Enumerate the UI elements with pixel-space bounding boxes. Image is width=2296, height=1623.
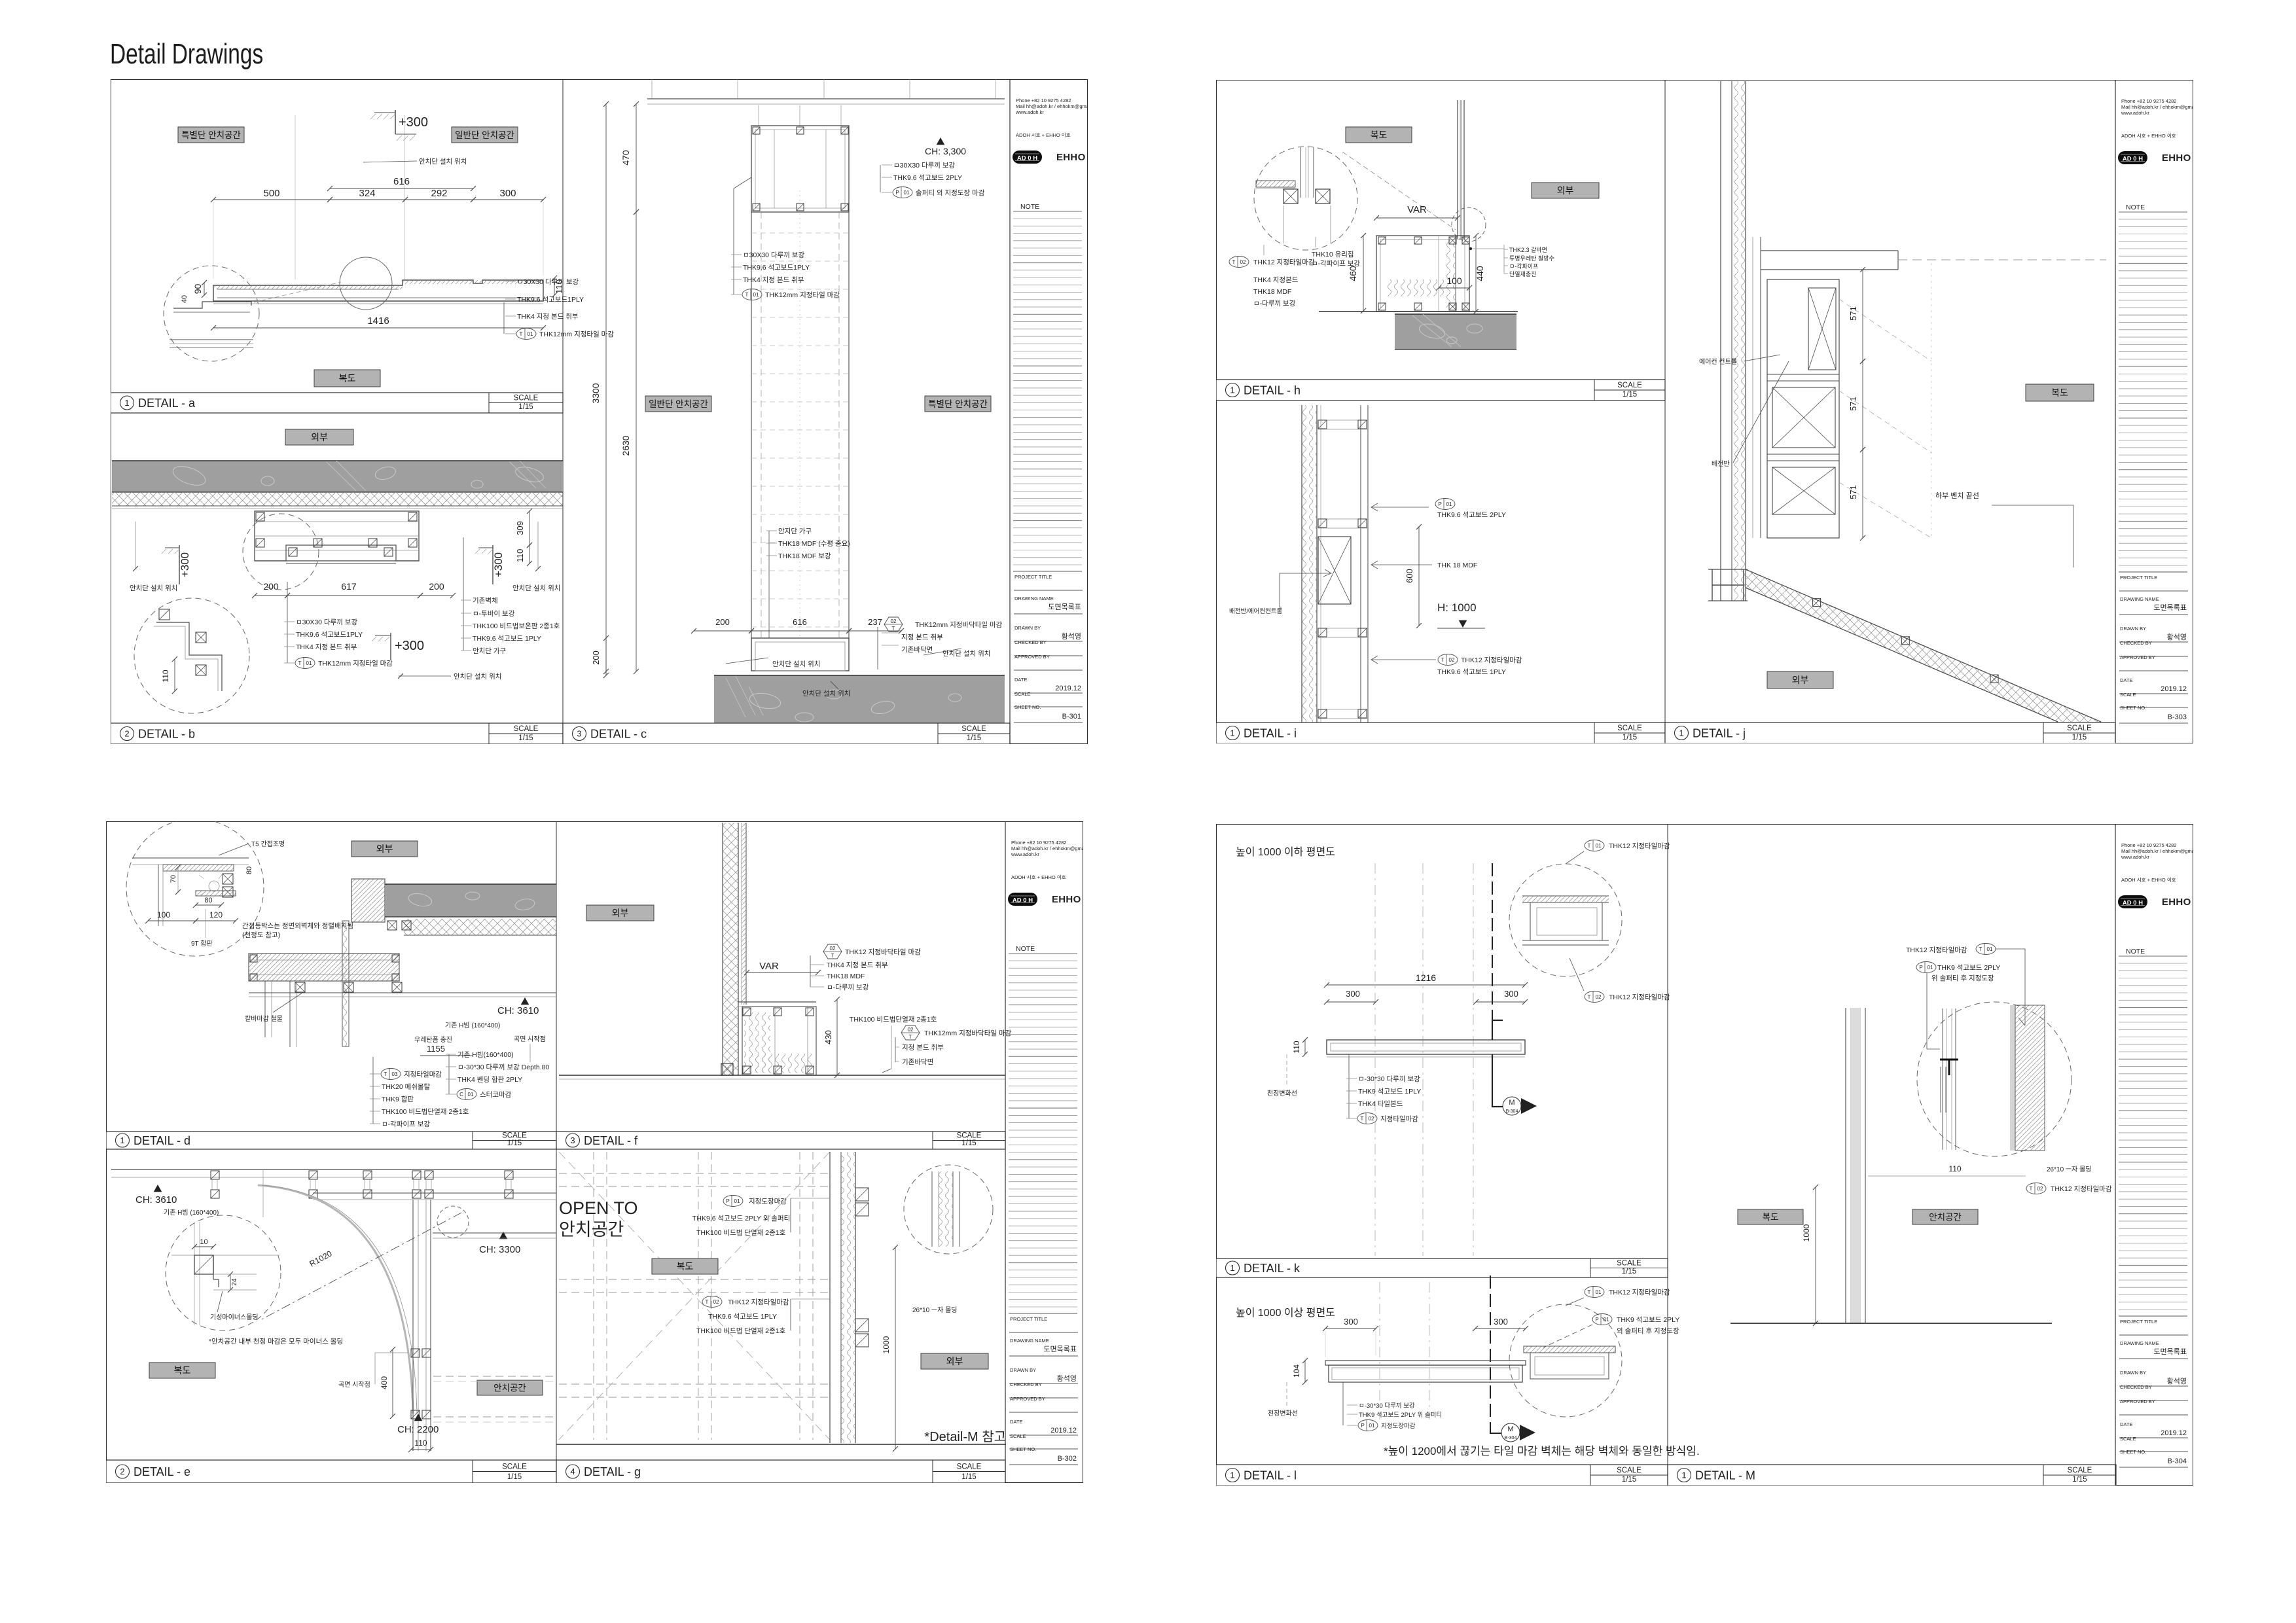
svg-text:THK9.6 석고보드 2PLY: THK9.6 석고보드 2PLY <box>1437 511 1506 519</box>
svg-text:+300: +300 <box>492 552 505 577</box>
svg-text:80: 80 <box>204 897 212 904</box>
svg-text:THK4 지정 본드 취부: THK4 지정 본드 취부 <box>296 643 357 651</box>
svg-text:B-304: B-304 <box>1505 1436 1517 1440</box>
svg-text:SCALE: SCALE <box>1617 382 1642 389</box>
svg-text:안치단 설치 위치: 안치단 설치 위치 <box>130 584 177 592</box>
svg-text:SCALE: SCALE <box>2120 692 2136 698</box>
svg-text:B-303: B-303 <box>2168 713 2187 721</box>
svg-text:Mail hh@adoh.kr / ehhokm@gmail: Mail hh@adoh.kr / ehhokm@gmail.com <box>1011 846 1083 851</box>
svg-text:SHEET NO.: SHEET NO. <box>2120 1449 2146 1455</box>
svg-text:ㅁ-30*30 다루끼 보강 Depth.80: ㅁ-30*30 다루끼 보강 Depth.80 <box>457 1063 549 1071</box>
svg-text:외부: 외부 <box>376 844 393 854</box>
svg-text:복도: 복도 <box>174 1365 191 1376</box>
svg-text:1/15: 1/15 <box>2072 734 2087 741</box>
svg-text:T: T <box>1441 657 1444 663</box>
svg-text:EHHO: EHHO <box>1056 152 1086 163</box>
svg-text:THK9 석고보드 2PLY: THK9 석고보드 2PLY <box>1617 1316 1679 1324</box>
svg-text:APPROVED BY: APPROVED BY <box>1014 654 1050 660</box>
svg-text:THK9.6 석고보드 1PLY: THK9.6 석고보드 1PLY <box>708 1313 777 1321</box>
svg-text:1/15: 1/15 <box>967 734 981 742</box>
svg-text:1: 1 <box>1230 385 1234 395</box>
svg-text:02: 02 <box>1240 259 1246 265</box>
svg-text:THK12mm 지정타일 마감: THK12mm 지정타일 마감 <box>318 659 393 668</box>
svg-text:10: 10 <box>200 1238 207 1246</box>
svg-text:DETAIL - g: DETAIL - g <box>584 1465 641 1478</box>
svg-text:www.adoh.kr: www.adoh.kr <box>1011 851 1039 857</box>
svg-text:460: 460 <box>1348 266 1358 281</box>
svg-text:DETAIL - M: DETAIL - M <box>1695 1469 1755 1482</box>
svg-text:ㅁ-30*30 다루끼 보강: ㅁ-30*30 다루끼 보강 <box>1358 1075 1420 1083</box>
svg-text:배전반: 배전반 <box>1712 460 1730 468</box>
svg-text:THK12mm 지정바닥타일 마감: THK12mm 지정바닥타일 마감 <box>924 1029 1012 1037</box>
svg-text:DETAIL - l: DETAIL - l <box>1244 1469 1297 1482</box>
svg-text:하부 벤치 끝선: 하부 벤치 끝선 <box>1935 491 1979 500</box>
svg-text:THK9.6 석고보드 2PLY: THK9.6 석고보드 2PLY <box>893 174 962 182</box>
svg-text:THK20 메쉬몰탈: THK20 메쉬몰탈 <box>382 1082 431 1091</box>
svg-text:01: 01 <box>1604 1317 1609 1323</box>
svg-text:CHECKED BY: CHECKED BY <box>2120 1384 2152 1390</box>
svg-text:THK9 석고보드 1PLY: THK9 석고보드 1PLY <box>1358 1088 1421 1096</box>
svg-text:AD 0 H: AD 0 H <box>2123 156 2143 163</box>
svg-text:AD 0 H: AD 0 H <box>1013 897 1033 904</box>
svg-text:ㅁ-다루끼 보강: ㅁ-다루끼 보강 <box>827 984 869 991</box>
svg-text:APPROVED BY: APPROVED BY <box>1010 1396 1045 1402</box>
svg-text:DATE: DATE <box>2120 677 2132 683</box>
svg-text:EHHO: EHHO <box>2162 897 2191 908</box>
svg-text:02: 02 <box>908 1027 914 1033</box>
svg-text:NOTE: NOTE <box>1016 945 1035 953</box>
svg-text:Mail hh@adoh.kr / ehhokm@gmail: Mail hh@adoh.kr / ehhokm@gmail.com <box>2121 848 2193 854</box>
svg-text:THK2.3 갈바면: THK2.3 갈바면 <box>1509 247 1547 253</box>
svg-text:600: 600 <box>1405 569 1414 583</box>
svg-text:지정타일마감: 지정타일마감 <box>1380 1115 1418 1123</box>
svg-text:+300: +300 <box>395 639 424 653</box>
svg-text:SCALE: SCALE <box>2067 724 2092 732</box>
svg-text:THK12 지정타일마감: THK12 지정타일마감 <box>1609 993 1670 1001</box>
svg-text:THK12mm 지정바닥타일 마감: THK12mm 지정바닥타일 마감 <box>915 620 1003 629</box>
svg-text:CH: 3610: CH: 3610 <box>135 1194 177 1205</box>
svg-text:SCALE: SCALE <box>514 395 539 402</box>
svg-text:도면목록표: 도면목록표 <box>2153 1347 2187 1356</box>
svg-text:1: 1 <box>1681 1471 1686 1480</box>
svg-text:DRAWN BY: DRAWN BY <box>2120 1370 2146 1376</box>
svg-text:110: 110 <box>161 669 170 682</box>
svg-text:DRAWN BY: DRAWN BY <box>2120 626 2146 632</box>
svg-text:01: 01 <box>528 331 533 337</box>
svg-text:616: 616 <box>393 176 410 187</box>
svg-text:237: 237 <box>868 617 882 627</box>
svg-text:02: 02 <box>713 1299 719 1305</box>
svg-text:2019.12: 2019.12 <box>2161 685 2187 693</box>
svg-text:01: 01 <box>1596 843 1602 849</box>
svg-text:특별단 안치공간: 특별단 안치공간 <box>928 399 988 409</box>
svg-text:02: 02 <box>1596 994 1602 1000</box>
svg-text:T: T <box>745 292 749 298</box>
svg-text:DETAIL - e: DETAIL - e <box>134 1465 190 1478</box>
svg-text:THK9 합판: THK9 합판 <box>382 1096 414 1103</box>
svg-text:40: 40 <box>181 295 188 303</box>
svg-text:Phone +82 10 9275 4282: Phone +82 10 9275 4282 <box>1016 98 1071 103</box>
svg-text:26*10 ㅡ자 몰딩: 26*10 ㅡ자 몰딩 <box>2047 1166 2092 1173</box>
svg-text:외부: 외부 <box>946 1356 963 1366</box>
svg-text:지정타일마감: 지정타일마감 <box>404 1070 442 1079</box>
svg-text:안치단 설치 위치: 안치단 설치 위치 <box>512 584 560 592</box>
svg-text:01: 01 <box>1369 1423 1375 1429</box>
svg-text:THK12 지정타일마감: THK12 지정타일마감 <box>1906 946 1967 954</box>
svg-text:THK12mm 지정타일 마감: THK12mm 지정타일 마감 <box>765 291 840 299</box>
svg-text:단열재충진: 단열재충진 <box>1509 271 1536 277</box>
svg-text:PROJECT TITLE: PROJECT TITLE <box>1010 1316 1047 1322</box>
svg-text:+300: +300 <box>179 552 191 577</box>
svg-text:01: 01 <box>1596 1289 1602 1295</box>
svg-text:안치단 설치 위치: 안치단 설치 위치 <box>802 689 850 698</box>
svg-text:110: 110 <box>414 1438 427 1448</box>
svg-text:CHECKED BY: CHECKED BY <box>1010 1382 1042 1387</box>
svg-text:PROJECT TITLE: PROJECT TITLE <box>1014 574 1052 580</box>
svg-text:DRAWING NAME: DRAWING NAME <box>2120 596 2159 602</box>
svg-text:THK9 석고보드 2PLY: THK9 석고보드 2PLY <box>1937 964 2000 972</box>
svg-text:지정도장마감: 지정도장마감 <box>1381 1422 1416 1430</box>
svg-text:1/15: 1/15 <box>518 734 533 742</box>
svg-text:기존 H빔(160*400): 기존 H빔(160*400) <box>457 1051 514 1059</box>
svg-text:THK18 MDF (수평 중요): THK18 MDF (수평 중요) <box>778 540 850 548</box>
svg-text:THK100 비드법 단열재 2종1호: THK100 비드법 단열재 2종1호 <box>696 1229 786 1237</box>
svg-text:B-304: B-304 <box>2168 1457 2187 1465</box>
svg-text:PROJECT TITLE: PROJECT TITLE <box>2120 1319 2157 1325</box>
svg-text:THK9.6 석고보드 1PLY: THK9.6 석고보드 1PLY <box>1437 668 1506 676</box>
svg-text:THK12mm 지정타일 마감: THK12mm 지정타일 마감 <box>539 330 614 338</box>
svg-text:일반단 안치공간: 일반단 안치공간 <box>455 130 514 140</box>
svg-text:SCALE: SCALE <box>2120 1436 2136 1442</box>
svg-text:P: P <box>1438 501 1441 507</box>
svg-text:*Detail-M 참고: *Detail-M 참고 <box>924 1429 1006 1444</box>
svg-text:외 솔퍼티 후 지정도장: 외 솔퍼티 후 지정도장 <box>1617 1327 1679 1335</box>
svg-text:THK100 비드법보온판 2종1호: THK100 비드법보온판 2종1호 <box>473 622 560 630</box>
svg-text:THK4 지정 본드 취부: THK4 지정 본드 취부 <box>827 961 888 969</box>
svg-text:309: 309 <box>515 521 525 535</box>
svg-text:300: 300 <box>1504 989 1518 999</box>
svg-text:1/15: 1/15 <box>507 1139 522 1147</box>
svg-text:+300: +300 <box>399 115 428 130</box>
svg-text:T: T <box>706 1299 709 1305</box>
svg-text:CHECKED BY: CHECKED BY <box>2120 640 2152 646</box>
svg-text:높이 1000 이상 평면도: 높이 1000 이상 평면도 <box>1236 1307 1335 1319</box>
svg-text:SHEET NO.: SHEET NO. <box>2120 705 2146 711</box>
svg-text:DETAIL - h: DETAIL - h <box>1244 384 1300 397</box>
svg-text:C: C <box>459 1092 463 1097</box>
svg-text:616: 616 <box>793 617 807 627</box>
svg-text:OPEN TO: OPEN TO <box>559 1198 638 1218</box>
svg-text:SCALE: SCALE <box>1617 724 1642 732</box>
svg-text:DETAIL - d: DETAIL - d <box>134 1134 190 1147</box>
svg-text:DETAIL - k: DETAIL - k <box>1244 1262 1300 1275</box>
svg-text:24: 24 <box>231 1278 238 1286</box>
svg-text:1000: 1000 <box>1802 1224 1811 1241</box>
svg-text:1/15: 1/15 <box>2072 1476 2087 1484</box>
svg-text:T5 간접조명: T5 간접조명 <box>251 840 285 848</box>
svg-text:300: 300 <box>1494 1317 1508 1327</box>
svg-text:THK12 지정타일마감: THK12 지정타일마감 <box>1609 842 1670 850</box>
svg-text:*높이 1200에서 끊기는 타일 마감 벽체는 해당 벽체: *높이 1200에서 끊기는 타일 마감 벽체는 해당 벽체와 동일한 방식임. <box>1384 1445 1700 1457</box>
svg-text:3: 3 <box>577 729 581 739</box>
svg-text:Mail hh@adoh.kr / ehhokm@gmail: Mail hh@adoh.kr / ehhokm@gmail.com <box>2121 104 2193 110</box>
svg-text:특별단 안치공간: 특별단 안치공간 <box>181 130 241 140</box>
svg-text:T: T <box>1232 259 1236 265</box>
svg-text:02: 02 <box>1369 1116 1374 1122</box>
svg-text:100: 100 <box>157 910 170 919</box>
svg-text:THK4 지정 본드 취부: THK4 지정 본드 취부 <box>743 276 804 284</box>
svg-text:02: 02 <box>830 946 836 952</box>
svg-text:APPROVED BY: APPROVED BY <box>2120 1399 2155 1404</box>
svg-text:안치단 설치 위치: 안치단 설치 위치 <box>772 660 820 668</box>
svg-text:SCALE: SCALE <box>957 1463 982 1471</box>
svg-text:T: T <box>298 660 302 666</box>
svg-text:도면목록표: 도면목록표 <box>1043 1345 1077 1353</box>
svg-text:01: 01 <box>1446 501 1452 507</box>
svg-text:110: 110 <box>1948 1164 1961 1173</box>
svg-text:T: T <box>909 1034 912 1040</box>
svg-text:324: 324 <box>359 188 375 199</box>
svg-text:SCALE: SCALE <box>1014 691 1031 697</box>
svg-text:1: 1 <box>1679 728 1683 738</box>
svg-text:571: 571 <box>1848 485 1858 499</box>
svg-text:01: 01 <box>1987 946 1993 952</box>
svg-text:투명우레탄 칠방수: 투명우레탄 칠방수 <box>1509 255 1554 262</box>
svg-text:200: 200 <box>591 651 601 665</box>
svg-text:VAR: VAR <box>759 961 779 972</box>
svg-text:DETAIL - a: DETAIL - a <box>138 397 196 410</box>
svg-text:P: P <box>1361 1423 1364 1429</box>
svg-text:1/15: 1/15 <box>1622 1268 1636 1275</box>
svg-text:200: 200 <box>263 581 279 592</box>
svg-text:P: P <box>895 190 899 196</box>
svg-text:황석영: 황석영 <box>1062 632 1081 641</box>
svg-text:SCALE: SCALE <box>961 725 986 733</box>
svg-text:안치단 설치 위치: 안치단 설치 위치 <box>419 157 467 166</box>
svg-text:ADOH 시호 + EHHO 이호: ADOH 시호 + EHHO 이호 <box>2121 876 2176 883</box>
svg-text:안치공간: 안치공간 <box>1929 1212 1962 1222</box>
svg-text:ㅁ-각파이프: ㅁ-각파이프 <box>1509 262 1538 270</box>
svg-text:스터코마감: 스터코마감 <box>480 1091 512 1099</box>
svg-text:ㅁ30X30 다루끼 보강: ㅁ30X30 다루끼 보강 <box>517 278 579 286</box>
svg-text:300: 300 <box>1346 989 1360 999</box>
svg-text:1/15: 1/15 <box>1623 391 1637 399</box>
svg-text:T: T <box>520 331 523 337</box>
svg-text:THK100 비드법 단열재 2종1호: THK100 비드법 단열재 2종1호 <box>696 1327 786 1335</box>
svg-text:DETAIL - i: DETAIL - i <box>1244 727 1297 740</box>
svg-text:B-304: B-304 <box>1506 1109 1518 1114</box>
svg-text:THK12 지정타일마감: THK12 지정타일마감 <box>2051 1185 2112 1193</box>
svg-text:위 솔퍼티 후 지정도장: 위 솔퍼티 후 지정도장 <box>1931 974 1994 982</box>
svg-text:THK18 MDF 보강: THK18 MDF 보강 <box>778 552 831 560</box>
svg-text:AD 0 H: AD 0 H <box>2123 900 2143 907</box>
svg-text:1: 1 <box>1230 728 1234 738</box>
svg-text:300: 300 <box>1344 1317 1358 1327</box>
svg-text:THK10 유리집: THK10 유리집 <box>1312 251 1354 259</box>
svg-text:571: 571 <box>1848 306 1858 321</box>
svg-text:DRAWN BY: DRAWN BY <box>1010 1367 1036 1373</box>
svg-text:황석영: 황석영 <box>1057 1374 1077 1383</box>
svg-text:01: 01 <box>468 1092 474 1097</box>
svg-text:DRAWN BY: DRAWN BY <box>1014 625 1041 631</box>
svg-text:NOTE: NOTE <box>1020 203 1039 211</box>
svg-text:천장변화선: 천장변화선 <box>1267 1090 1297 1097</box>
svg-text:THK12 지정타일마감: THK12 지정타일마감 <box>1253 258 1315 266</box>
svg-text:DRAWING NAME: DRAWING NAME <box>2120 1340 2159 1346</box>
svg-text:03: 03 <box>392 1071 398 1077</box>
svg-text:T: T <box>831 953 834 959</box>
svg-text:430: 430 <box>823 1030 833 1044</box>
svg-text:THK100 비드법단열재 2종1호: THK100 비드법단열재 2종1호 <box>850 1016 937 1024</box>
svg-text:DRAWING NAME: DRAWING NAME <box>1010 1338 1049 1344</box>
svg-text:ADOH 시호 + EHHO 이호: ADOH 시호 + EHHO 이호 <box>2121 132 2176 139</box>
svg-text:SCALE: SCALE <box>2068 1467 2092 1474</box>
svg-text:복도: 복도 <box>1763 1212 1779 1222</box>
svg-text:EHHO: EHHO <box>2162 152 2191 164</box>
svg-text:APPROVED BY: APPROVED BY <box>2120 654 2155 660</box>
svg-text:NOTE: NOTE <box>2126 948 2145 955</box>
svg-text:THK4 지정본드: THK4 지정본드 <box>1253 276 1299 284</box>
svg-text:복도: 복도 <box>677 1261 694 1272</box>
svg-text:2: 2 <box>120 1467 124 1476</box>
svg-text:복도: 복도 <box>2051 387 2068 398</box>
svg-text:AD 0 H: AD 0 H <box>1017 155 1037 162</box>
svg-text:THK9.6 석고보드 1PLY: THK9.6 석고보드 1PLY <box>473 635 541 643</box>
svg-text:SCALE: SCALE <box>514 725 539 733</box>
svg-text:100: 100 <box>1446 276 1462 286</box>
svg-text:안지단 가구: 안지단 가구 <box>778 527 812 535</box>
svg-text:1416: 1416 <box>367 315 389 327</box>
svg-text:SCALE: SCALE <box>1617 1260 1641 1268</box>
svg-text:기존바닥면: 기존바닥면 <box>902 1058 933 1066</box>
svg-text:01: 01 <box>306 660 312 666</box>
svg-text:P: P <box>1595 1317 1598 1323</box>
svg-text:2019.12: 2019.12 <box>2161 1429 2187 1437</box>
svg-text:Phone +82 10 9275 4282: Phone +82 10 9275 4282 <box>1011 840 1066 846</box>
svg-text:THK12 지정타일마감: THK12 지정타일마감 <box>728 1298 789 1306</box>
svg-text:www.adoh.kr: www.adoh.kr <box>2121 854 2149 860</box>
svg-text:300: 300 <box>499 188 516 199</box>
svg-text:THK4 타일본드: THK4 타일본드 <box>1358 1099 1403 1108</box>
svg-text:ㅁ-다루끼 보강: ㅁ-다루끼 보강 <box>1253 300 1296 308</box>
svg-text:3: 3 <box>570 1135 575 1145</box>
svg-text:DATE: DATE <box>1010 1419 1022 1425</box>
svg-text:T: T <box>1588 843 1591 849</box>
svg-text:기존 H빔 (160*400): 기존 H빔 (160*400) <box>164 1209 219 1217</box>
svg-text:CH: 3,300: CH: 3,300 <box>925 146 966 156</box>
svg-text:DETAIL - j: DETAIL - j <box>1693 727 1746 740</box>
svg-text:2630: 2630 <box>620 435 631 455</box>
svg-text:70: 70 <box>170 875 177 883</box>
svg-text:M: M <box>1509 1099 1515 1107</box>
svg-text:200: 200 <box>429 581 444 592</box>
svg-text:안치단 가구: 안치단 가구 <box>473 647 507 655</box>
svg-text:곡면 시작점: 곡면 시작점 <box>514 1035 546 1043</box>
svg-text:Mail hh@adoh.kr / ehhokm@gmail: Mail hh@adoh.kr / ehhokm@gmail.com <box>1016 103 1088 109</box>
svg-text:THK9.6 석고보드1PLY: THK9.6 석고보드1PLY <box>296 631 363 639</box>
svg-text:M: M <box>1507 1425 1513 1433</box>
svg-text:CH: 3610: CH: 3610 <box>497 1005 539 1016</box>
svg-text:솔퍼티 외 지정도장 마감: 솔퍼티 외 지정도장 마감 <box>916 189 985 197</box>
svg-text:THK100 비드법단열재 2종1호: THK100 비드법단열재 2종1호 <box>382 1108 469 1116</box>
svg-text:기성마이너스몰딩: 기성마이너스몰딩 <box>210 1313 259 1321</box>
svg-text:ADOH 시호 + EHHO 이호: ADOH 시호 + EHHO 이호 <box>1016 132 1071 138</box>
svg-text:1/15: 1/15 <box>1622 1476 1636 1484</box>
svg-text:THK 18 MDF: THK 18 MDF <box>1437 562 1477 569</box>
svg-text:DETAIL - b: DETAIL - b <box>138 728 195 741</box>
svg-text:THK18 MDF: THK18 MDF <box>827 972 865 980</box>
svg-text:안치단 설치 위치: 안치단 설치 위치 <box>942 649 990 658</box>
svg-text:02: 02 <box>1449 657 1455 663</box>
svg-text:2019.12: 2019.12 <box>1055 685 1081 692</box>
svg-text:90: 90 <box>192 284 203 294</box>
svg-text:DETAIL - f: DETAIL - f <box>584 1134 638 1147</box>
svg-text:02: 02 <box>2037 1186 2043 1192</box>
svg-text:www.adoh.kr: www.adoh.kr <box>2121 110 2149 116</box>
svg-text:DATE: DATE <box>1014 677 1027 683</box>
svg-text:PROJECT TITLE: PROJECT TITLE <box>2120 575 2157 580</box>
svg-text:617: 617 <box>341 581 357 592</box>
svg-text:Phone +82 10 9275 4282: Phone +82 10 9275 4282 <box>2121 842 2176 848</box>
svg-text:292: 292 <box>431 188 447 199</box>
svg-text:01: 01 <box>904 190 910 196</box>
svg-text:황석영: 황석영 <box>2167 633 2187 641</box>
svg-text:200: 200 <box>715 617 730 627</box>
svg-text:26*10 ㅡ자 몰딩: 26*10 ㅡ자 몰딩 <box>912 1306 958 1314</box>
svg-text:1/15: 1/15 <box>961 1473 976 1481</box>
svg-text:P: P <box>726 1198 729 1204</box>
svg-text:THK4 지정 본드 취부: THK4 지정 본드 취부 <box>517 313 579 321</box>
svg-text:CH: 3300: CH: 3300 <box>479 1244 520 1255</box>
svg-text:복도: 복도 <box>1371 130 1388 140</box>
svg-text:THK9.6 석고보드1PLY: THK9.6 석고보드1PLY <box>743 264 810 272</box>
svg-text:440: 440 <box>1475 266 1485 281</box>
svg-text:안치공간: 안치공간 <box>493 1383 526 1393</box>
svg-text:Phone +82 10 9275 4282: Phone +82 10 9275 4282 <box>2121 98 2176 104</box>
svg-text:THK4 벤딩 합판 2PLY: THK4 벤딩 합판 2PLY <box>457 1076 522 1084</box>
svg-text:THK18 MDF: THK18 MDF <box>1253 288 1291 296</box>
svg-text:CH: 2200: CH: 2200 <box>397 1424 439 1435</box>
svg-text:간접등박스는 정면외벽체와 정렬배치됨: 간접등박스는 정면외벽체와 정렬배치됨 <box>242 921 353 930</box>
svg-text:NOTE: NOTE <box>2126 204 2145 211</box>
svg-text:안치공간: 안치공간 <box>559 1220 624 1240</box>
svg-text:02: 02 <box>891 618 897 624</box>
svg-text:T: T <box>384 1071 387 1077</box>
svg-text:곡면 시작점: 곡면 시작점 <box>338 1381 370 1389</box>
svg-text:110: 110 <box>1292 1041 1301 1053</box>
svg-text:2: 2 <box>124 729 129 739</box>
svg-text:SCALE: SCALE <box>502 1132 527 1140</box>
svg-text:1: 1 <box>1230 1471 1234 1480</box>
svg-text:외부: 외부 <box>1792 675 1809 685</box>
svg-text:T: T <box>1979 946 1982 952</box>
svg-text:THK12 지정타일마감: THK12 지정타일마감 <box>1461 656 1522 664</box>
svg-text:01: 01 <box>1928 965 1933 971</box>
svg-text:ㅁ-투바이 보강: ㅁ-투바이 보강 <box>473 610 515 618</box>
svg-text:EHHO: EHHO <box>1052 894 1081 905</box>
svg-text:SHEET NO.: SHEET NO. <box>1014 704 1041 710</box>
svg-text:ㅁ30X30 다루끼 보강: ㅁ30X30 다루끼 보강 <box>296 618 357 626</box>
svg-text:DATE: DATE <box>2120 1421 2132 1427</box>
svg-text:1: 1 <box>1230 1263 1234 1273</box>
svg-text:1/15: 1/15 <box>507 1473 522 1481</box>
svg-text:T: T <box>1588 994 1591 1000</box>
svg-text:ADOH 시호 + EHHO 이호: ADOH 시호 + EHHO 이호 <box>1011 874 1066 880</box>
svg-text:도면목록표: 도면목록표 <box>2153 603 2187 612</box>
svg-text:VAR: VAR <box>1407 204 1427 215</box>
svg-text:ㅁ-30*30 다루끼 보강: ㅁ-30*30 다루끼 보강 <box>1359 1402 1415 1410</box>
svg-text:1/15: 1/15 <box>518 403 533 411</box>
